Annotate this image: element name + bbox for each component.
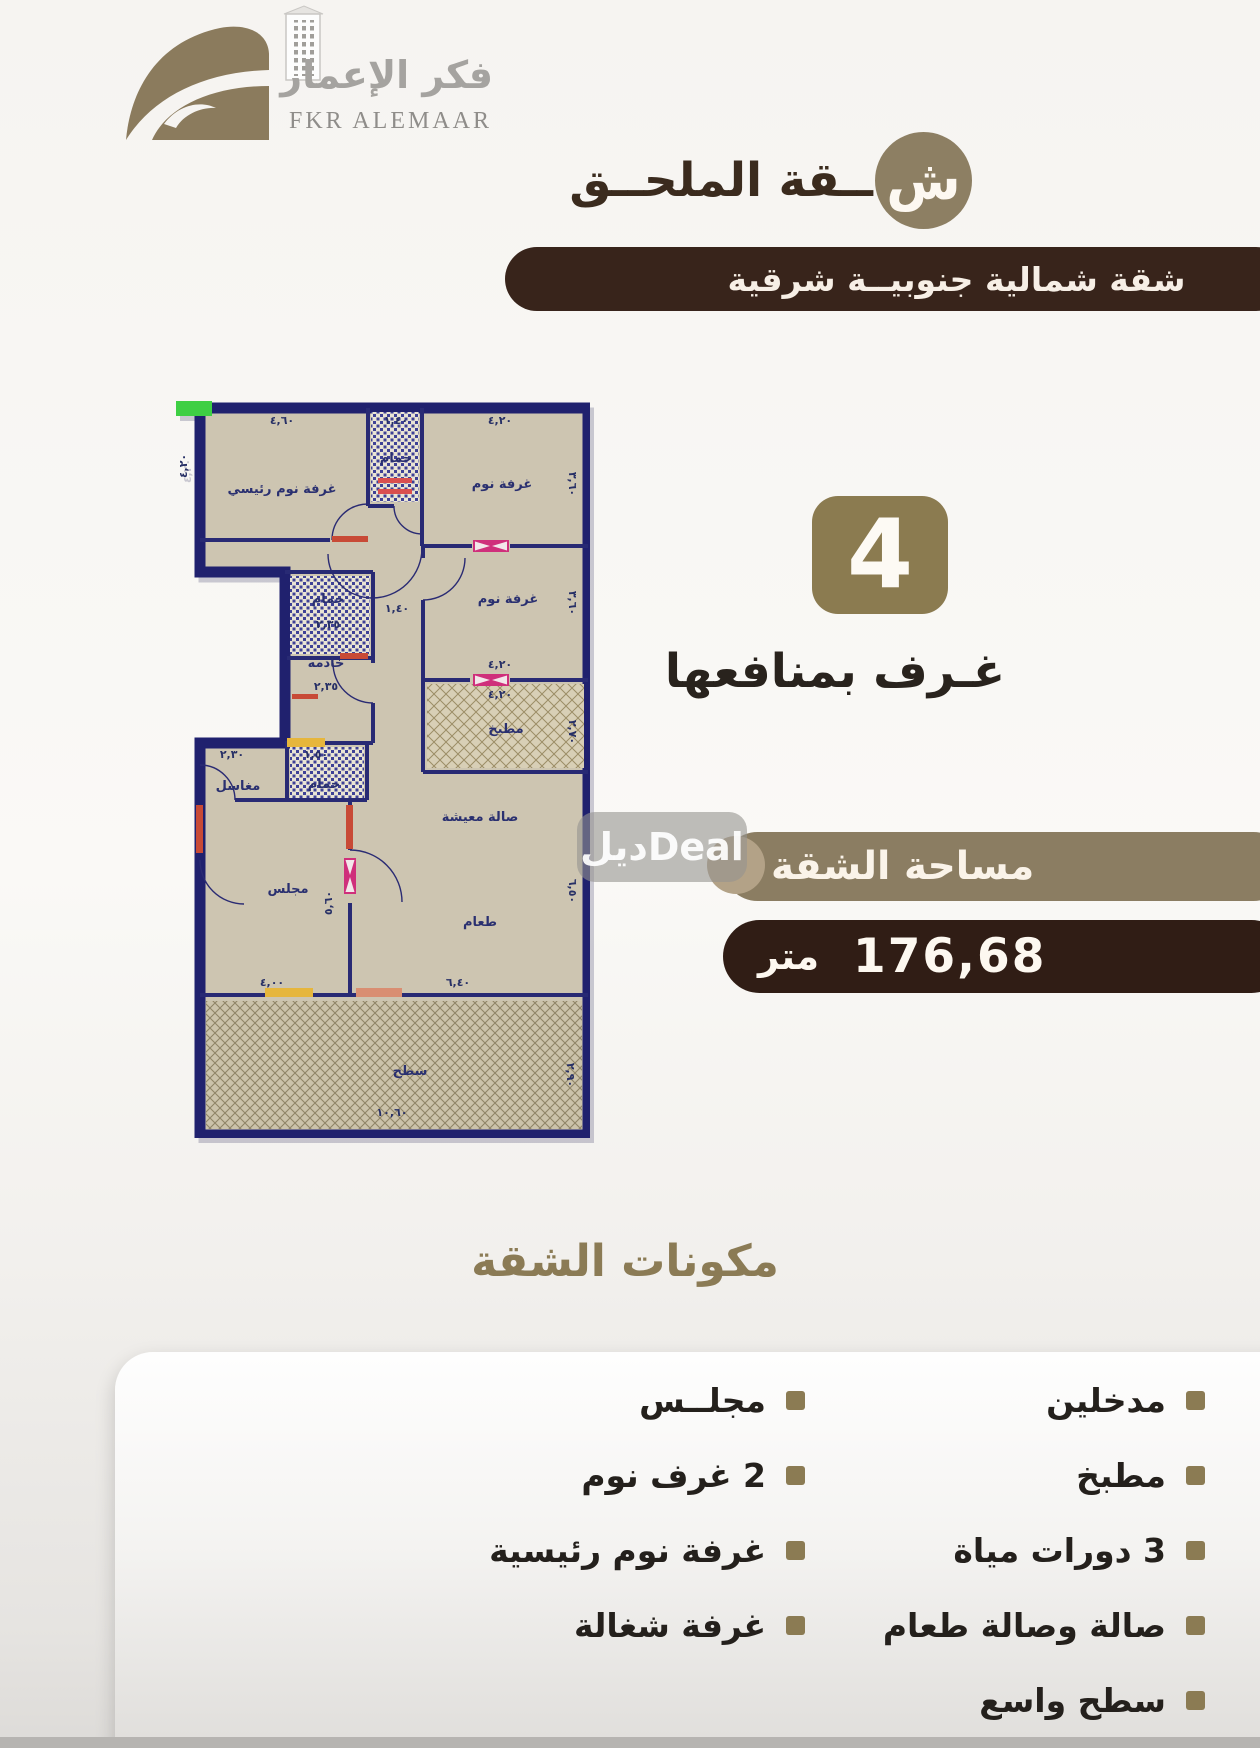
plan-dimension-label: ٣,٦٠ <box>566 591 579 615</box>
plan-dimension-label: ٦,٥٠ <box>566 879 579 903</box>
components-heading: مكونات الشقة <box>375 1236 875 1287</box>
floor-plan: غرفة نوم رئيسي٤,٦٠١,٤٠حمام٤,٢٠غرفة نوم٣,… <box>170 358 590 1138</box>
bullet-icon <box>1186 1391 1205 1410</box>
title-initial-letter: ش <box>886 149 961 212</box>
plan-dimension-label: ٤,٠٠ <box>260 976 284 989</box>
plan-dimension-label: ١,٤٠ <box>384 414 408 427</box>
list-item: صالة وصالة طعام <box>815 1603 1205 1647</box>
page-title: ش ــقة الملحــق <box>560 128 972 232</box>
list-item: 2 غرف نوم <box>415 1453 805 1497</box>
north-corner-marker <box>176 401 212 416</box>
plan-dimension-label: ٢,٣٥ <box>314 680 339 693</box>
bullet-icon <box>1186 1466 1205 1485</box>
orientation-badge-text: شقة شمالية جنوبيــة شرقية <box>728 260 1186 299</box>
rooms-count-value: 4 <box>847 500 913 610</box>
plan-dimension-label: ٤,٢٠ <box>488 688 512 701</box>
plan-dimension-label: ٦,٤٠ <box>446 976 470 989</box>
plan-dimension-label: ٤,٢٠ <box>177 454 190 478</box>
area-label-text: مساحة الشقة <box>771 844 1034 889</box>
plan-dimension-label: ٢,٣٥ <box>316 618 341 631</box>
rooms-count-label: غـرف بمنافعها <box>615 644 1055 699</box>
plan-dimension-label: ٤,٢٠ <box>488 658 512 671</box>
plan-dimension-label: ٢,٩٠ <box>564 1063 577 1087</box>
plan-dimension-label: ٢,٧٠ <box>566 720 579 744</box>
plan-room-label: غرفة نوم رئيسي <box>227 482 336 497</box>
list-item-label: غرفة شغالة <box>574 1606 766 1645</box>
list-item: سطح واسع <box>815 1678 1205 1722</box>
list-item-label: مدخلين <box>1046 1381 1166 1420</box>
plan-room-label: مطبخ <box>488 722 523 737</box>
plan-dimension-label: ١,٤٠ <box>385 602 409 615</box>
components-card: مدخلين مطبخ 3 دورات مياة صالة وصالة طعام… <box>115 1352 1260 1748</box>
bullet-icon <box>786 1541 805 1560</box>
plan-dimension-label: ١,٥٠ <box>304 748 328 761</box>
list-item: غرفة نوم رئيسية <box>415 1528 805 1572</box>
plan-room-label: مغاسل <box>216 779 261 794</box>
logo-english-name: FKR ALEMAAR <box>289 108 492 134</box>
list-item: مطبخ <box>815 1453 1205 1497</box>
list-item-label: صالة وصالة طعام <box>883 1606 1166 1645</box>
plan-dimension-label: ٢,٣٠ <box>220 748 244 761</box>
plan-dimension-label: ١٠,٦٠ <box>376 1106 407 1119</box>
plan-room-label: طعام <box>463 915 497 930</box>
list-item: 3 دورات مياة <box>815 1528 1205 1572</box>
list-item-label: غرفة نوم رئيسية <box>489 1531 766 1570</box>
list-item-label: 3 دورات مياة <box>953 1531 1166 1570</box>
bullet-icon <box>1186 1616 1205 1635</box>
title-initial-circle: ش <box>875 132 972 229</box>
plan-room-label: سطح <box>393 1064 428 1079</box>
plan-room-label: حمام <box>312 592 345 607</box>
components-right-column: مدخلين مطبخ 3 دورات مياة صالة وصالة طعام… <box>815 1378 1205 1722</box>
rooms-count-badge: 4 <box>812 496 948 614</box>
components-left-column: مجلــس 2 غرف نوم غرفة نوم رئيسية غرفة شغ… <box>415 1378 805 1722</box>
plan-room-label: غرفة نوم <box>478 592 538 607</box>
list-item-label: 2 غرف نوم <box>581 1456 766 1495</box>
plan-room-label: خادمه <box>308 656 345 671</box>
bathroom2-tiles <box>290 576 370 654</box>
plan-room-label: غرفة نوم <box>472 477 532 492</box>
orientation-badge: شقة شمالية جنوبيــة شرقية <box>505 247 1260 311</box>
plan-dimension-label: ٤,٢٠ <box>488 414 512 427</box>
list-item-label: مطبخ <box>1076 1456 1166 1495</box>
company-logo: فكر الإعمار FKR ALEMAAR <box>118 2 498 152</box>
plan-dimension-label: ٥,٦٠ <box>322 891 335 915</box>
bullet-icon <box>786 1391 805 1410</box>
bullet-icon <box>1186 1541 1205 1560</box>
plan-room-label: مجلس <box>267 882 308 897</box>
watermark-badge: ديلDeal <box>577 812 747 882</box>
area-unit: متر <box>758 935 819 978</box>
plan-dimension-label: ٤,٦٠ <box>270 414 294 427</box>
bullet-icon <box>786 1466 805 1485</box>
plan-room-label: صالة معيشة <box>442 810 519 825</box>
logo-arabic-name: فكر الإعمار <box>278 53 493 97</box>
page-bottom-strip <box>0 1737 1260 1748</box>
flyer-page: فكر الإعمار FKR ALEMAAR ش ــقة الملحــق … <box>0 0 1260 1748</box>
area-value-pill: متر 176,68 <box>723 920 1260 993</box>
plan-room-label: حمام <box>380 451 413 466</box>
list-item: غرفة شغالة <box>415 1603 805 1647</box>
bullet-icon <box>786 1616 805 1635</box>
title-text: ــقة الملحــق <box>569 153 873 208</box>
watermark-text: ديلDeal <box>580 825 744 869</box>
plan-room-label: حمام <box>308 777 341 792</box>
area-label-pill: مساحة الشقة <box>723 832 1260 901</box>
area-value: 176,68 <box>853 929 1046 984</box>
list-item-label: مجلــس <box>639 1381 766 1420</box>
plan-dimension-label: ٣,٦٠ <box>566 472 579 496</box>
bullet-icon <box>1186 1691 1205 1710</box>
list-item: مجلــس <box>415 1378 805 1422</box>
list-item-label: سطح واسع <box>979 1681 1166 1720</box>
list-item: مدخلين <box>815 1378 1205 1422</box>
